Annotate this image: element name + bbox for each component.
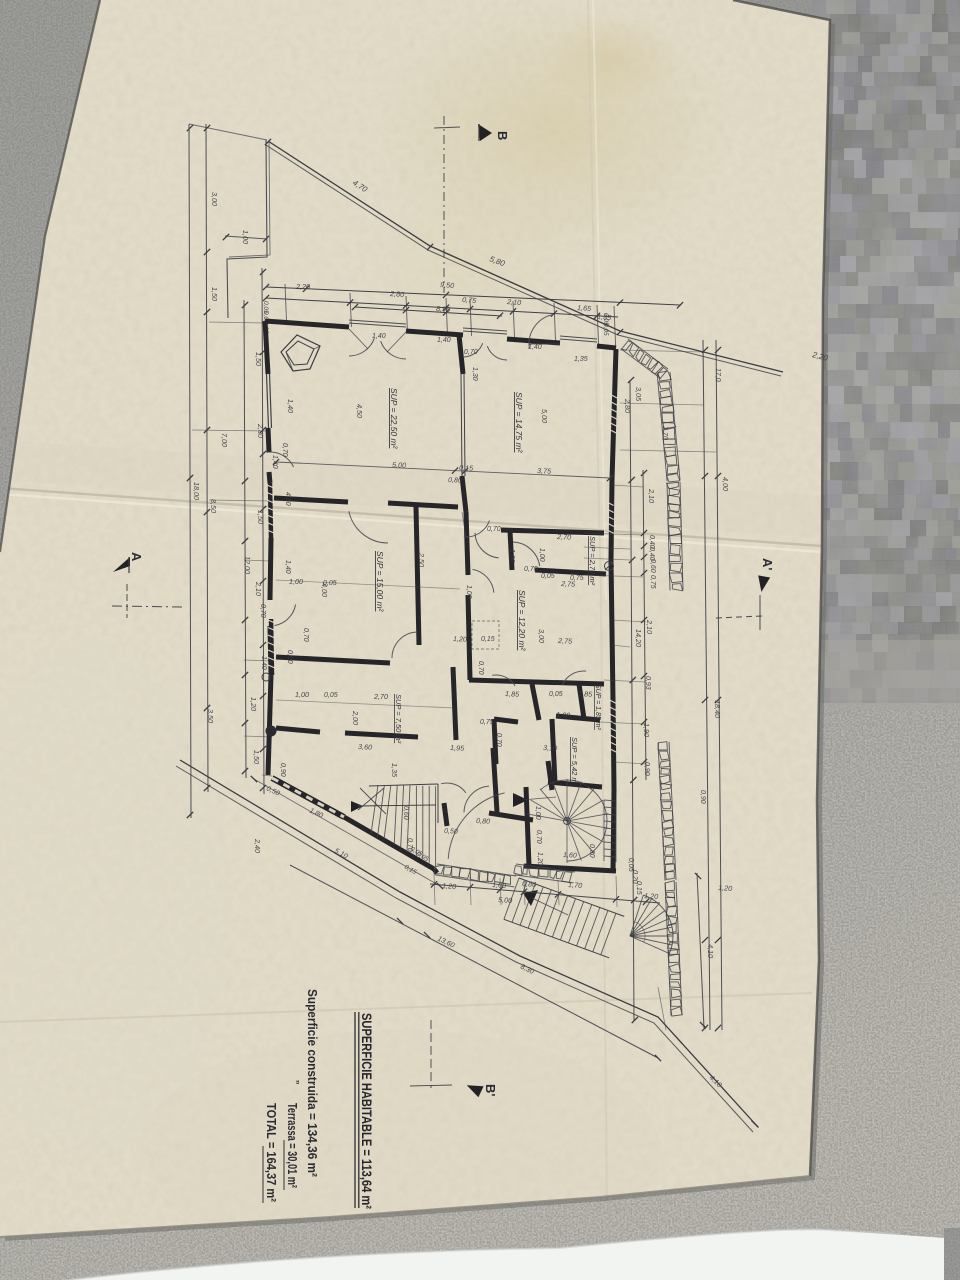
svg-text:1,70: 1,70 bbox=[568, 880, 583, 890]
svg-text:A': A' bbox=[760, 558, 775, 570]
svg-text:2,40: 2,40 bbox=[253, 838, 262, 853]
svg-text:0,05: 0,05 bbox=[324, 692, 338, 699]
svg-text:0,75: 0,75 bbox=[480, 719, 494, 726]
svg-text:0,15: 0,15 bbox=[635, 881, 642, 895]
svg-text:3,00: 3,00 bbox=[537, 629, 546, 643]
svg-text:7,00: 7,00 bbox=[220, 433, 229, 447]
svg-text:0,90: 0,90 bbox=[699, 790, 706, 804]
svg-text:Terrassa = 30,01 m²: Terrassa = 30,01 m² bbox=[285, 1103, 299, 1188]
svg-text:1,50: 1,50 bbox=[256, 510, 265, 524]
svg-text:2,75: 2,75 bbox=[557, 636, 573, 646]
svg-text:3,50: 3,50 bbox=[206, 709, 215, 723]
svg-text:0,05: 0,05 bbox=[549, 691, 563, 698]
svg-text:0,15: 0,15 bbox=[481, 636, 495, 643]
svg-text:1,30: 1,30 bbox=[471, 367, 478, 381]
svg-text:1,00: 1,00 bbox=[289, 577, 303, 586]
svg-text:SUPERFICIE HABITABLE = 113,64: SUPERFICIE HABITABLE = 113,64 m² bbox=[359, 1013, 374, 1209]
svg-text:0,70: 0,70 bbox=[259, 604, 266, 618]
svg-text:1,40: 1,40 bbox=[437, 337, 451, 344]
svg-text:1,00: 1,00 bbox=[556, 710, 570, 720]
svg-text:1,00: 1,00 bbox=[241, 230, 250, 244]
svg-text:0,90: 0,90 bbox=[286, 650, 293, 664]
svg-text:0,70: 0,70 bbox=[524, 566, 538, 573]
svg-text:1,20: 1,20 bbox=[644, 891, 659, 901]
svg-text:1,20: 1,20 bbox=[536, 852, 543, 866]
svg-text:4,10: 4,10 bbox=[706, 944, 715, 958]
svg-text:4,50: 4,50 bbox=[355, 404, 364, 418]
svg-text:1,35: 1,35 bbox=[574, 356, 588, 363]
svg-text:12,00: 12,00 bbox=[243, 556, 252, 574]
svg-text:1,00: 1,00 bbox=[534, 806, 541, 820]
svg-text:1,60: 1,60 bbox=[563, 852, 577, 860]
svg-text:SUP = 14,75 m²: SUP = 14,75 m² bbox=[514, 392, 524, 454]
svg-text:SUP = 22,50 m²: SUP = 22,50 m² bbox=[389, 388, 399, 450]
svg-text:SUP = 7,50 m²: SUP = 7,50 m² bbox=[394, 694, 403, 744]
svg-text:0,70: 0,70 bbox=[477, 661, 484, 675]
svg-text:1,85: 1,85 bbox=[578, 689, 593, 699]
svg-text:2,10: 2,10 bbox=[254, 581, 263, 596]
svg-text:Superficie construida = 134,: Superficie construida = 134,36 m² bbox=[305, 989, 319, 1177]
svg-text:0,93: 0,93 bbox=[644, 676, 651, 690]
svg-text:1,40: 1,40 bbox=[372, 333, 386, 340]
svg-text:0,75: 0,75 bbox=[649, 575, 656, 589]
svg-text:SUP = 12,20 m²: SUP = 12,20 m² bbox=[517, 590, 527, 652]
svg-text:0,50: 0,50 bbox=[444, 828, 458, 836]
svg-text:1,00: 1,00 bbox=[492, 880, 507, 890]
svg-text:8,90: 8,90 bbox=[436, 304, 451, 314]
svg-text:0,05: 0,05 bbox=[602, 323, 609, 336]
svg-text:0,15: 0,15 bbox=[459, 463, 474, 473]
svg-text:0,80: 0,80 bbox=[448, 477, 462, 485]
svg-text:1,95: 1,95 bbox=[450, 743, 465, 753]
svg-text:SUP = 15,00 m²: SUP = 15,00 m² bbox=[375, 551, 385, 613]
svg-text:1,00: 1,00 bbox=[295, 690, 309, 699]
svg-text:0,70: 0,70 bbox=[464, 349, 478, 356]
svg-text:1,50: 1,50 bbox=[210, 287, 219, 301]
svg-text:2,70: 2,70 bbox=[556, 532, 571, 542]
svg-text:SUP = 1,85 m²: SUP = 1,85 m² bbox=[594, 684, 601, 731]
svg-text:1,00: 1,00 bbox=[465, 585, 472, 599]
svg-text:”: ” bbox=[287, 1080, 301, 1084]
svg-text:0,80: 0,80 bbox=[476, 816, 490, 826]
svg-text:1,05: 1,05 bbox=[508, 549, 515, 563]
svg-text:0,60: 0,60 bbox=[402, 806, 409, 820]
svg-text:8,50: 8,50 bbox=[209, 499, 218, 513]
svg-text:3,75: 3,75 bbox=[537, 466, 552, 476]
svg-text:3,05: 3,05 bbox=[634, 387, 643, 402]
svg-text:2,70: 2,70 bbox=[373, 692, 388, 701]
svg-text:18,00: 18,00 bbox=[192, 482, 201, 500]
svg-text:0,80: 0,80 bbox=[588, 844, 595, 858]
svg-text:2,10: 2,10 bbox=[506, 297, 522, 307]
svg-text:0,75: 0,75 bbox=[462, 295, 478, 305]
svg-text:0,70: 0,70 bbox=[495, 733, 502, 747]
svg-text:1,50: 1,50 bbox=[254, 352, 263, 366]
svg-text:1,20: 1,20 bbox=[249, 697, 258, 711]
svg-text:1,50: 1,50 bbox=[252, 750, 261, 764]
svg-text:2,10: 2,10 bbox=[645, 619, 654, 634]
svg-text:18,40: 18,40 bbox=[713, 700, 722, 718]
svg-text:0,70: 0,70 bbox=[281, 443, 288, 457]
svg-text:2,00: 2,00 bbox=[351, 710, 360, 725]
svg-text:0,70: 0,70 bbox=[535, 830, 542, 844]
svg-text:1,90: 1,90 bbox=[642, 723, 651, 737]
svg-text:SUP = 2,70 m²: SUP = 2,70 m² bbox=[588, 536, 597, 586]
svg-text:0,60: 0,60 bbox=[649, 559, 656, 573]
svg-text:1,00: 1,00 bbox=[538, 548, 545, 562]
svg-text:1,70: 1,70 bbox=[661, 426, 670, 440]
svg-text:A: A bbox=[129, 552, 144, 562]
svg-text:1,40: 1,40 bbox=[260, 656, 267, 670]
svg-text:2,80: 2,80 bbox=[389, 289, 405, 299]
svg-text:1,20: 1,20 bbox=[442, 881, 457, 891]
svg-text:SUP = 5,42 m²: SUP = 5,42 m² bbox=[570, 737, 579, 787]
svg-text:0,90: 0,90 bbox=[279, 763, 286, 777]
svg-text:3,60: 3,60 bbox=[358, 742, 372, 752]
svg-text:5,00: 5,00 bbox=[540, 409, 549, 423]
svg-text:5,00: 5,00 bbox=[498, 895, 513, 905]
svg-text:2,80: 2,80 bbox=[623, 398, 632, 413]
svg-text:1,65: 1,65 bbox=[577, 303, 593, 313]
svg-text:5,00: 5,00 bbox=[392, 460, 406, 470]
svg-text:1,40: 1,40 bbox=[284, 560, 291, 574]
svg-text:3,00: 3,00 bbox=[210, 192, 219, 206]
svg-text:1,85: 1,85 bbox=[505, 689, 520, 699]
svg-text:1,20: 1,20 bbox=[453, 636, 467, 644]
svg-text:4,50: 4,50 bbox=[284, 492, 291, 506]
svg-text:B: B bbox=[495, 131, 510, 140]
svg-text:0,70: 0,70 bbox=[302, 628, 309, 642]
svg-text:0,75: 0,75 bbox=[570, 575, 584, 582]
svg-text:TOTAL = 164,37 m²: TOTAL = 164,37 m² bbox=[264, 1103, 278, 1202]
svg-text:0,05: 0,05 bbox=[541, 573, 555, 580]
svg-text:1,20: 1,20 bbox=[718, 883, 733, 893]
svg-text:B': B' bbox=[483, 1084, 498, 1096]
svg-text:14,20: 14,20 bbox=[634, 629, 643, 647]
svg-text:4,00: 4,00 bbox=[320, 583, 329, 597]
svg-text:3,10: 3,10 bbox=[543, 743, 557, 753]
svg-text:2,20: 2,20 bbox=[295, 282, 310, 291]
svg-text:1,40: 1,40 bbox=[286, 399, 295, 413]
svg-text:17,0: 17,0 bbox=[714, 368, 721, 382]
svg-text:4,00: 4,00 bbox=[721, 477, 730, 491]
svg-text:1,40: 1,40 bbox=[528, 344, 542, 351]
svg-text:2,10: 2,10 bbox=[647, 488, 656, 503]
svg-text:1,35: 1,35 bbox=[390, 763, 399, 778]
svg-text:0,70: 0,70 bbox=[487, 526, 501, 533]
svg-text:9,50: 9,50 bbox=[440, 280, 455, 290]
svg-text:2,50: 2,50 bbox=[417, 552, 426, 567]
